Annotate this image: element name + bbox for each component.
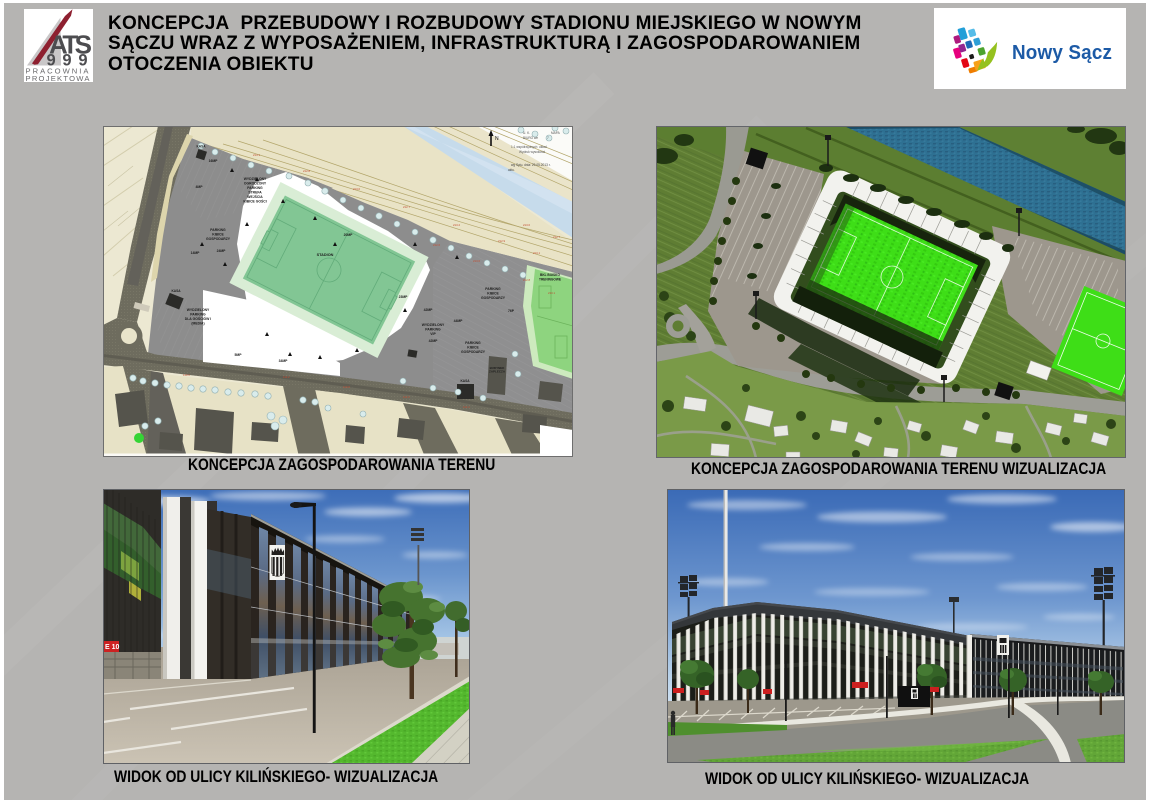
svg-text:aktu.: aktu. (508, 168, 515, 172)
svg-text:4MP: 4MP (196, 185, 204, 189)
svg-text:WYDZIELONY: WYDZIELONY (187, 308, 210, 312)
svg-text:213.1: 213.1 (548, 291, 555, 295)
svg-text:213.0: 213.0 (473, 259, 480, 263)
svg-text:(MEDIA): (MEDIA) (191, 322, 204, 326)
svg-text:212.7: 212.7 (403, 205, 410, 209)
svg-text:111.2: 111.2 (283, 375, 290, 379)
svg-text:213.1: 213.1 (253, 153, 260, 157)
svg-text:PARKING: PARKING (210, 228, 226, 232)
svg-text:213.0: 213.0 (523, 223, 530, 227)
svg-text:PARKING: PARKING (425, 328, 441, 332)
svg-text:STREFA: STREFA (248, 191, 262, 195)
svg-text:111.0: 111.0 (403, 395, 410, 399)
svg-text:TRENINGOWE: TRENINGOWE (539, 278, 561, 282)
svg-text:24MP: 24MP (217, 249, 227, 253)
svg-text:44MP: 44MP (454, 319, 464, 323)
svg-text:213.2: 213.2 (453, 223, 460, 227)
svg-text:GOSPODARZY: GOSPODARZY (206, 237, 231, 241)
svg-text:110.8: 110.8 (343, 385, 350, 389)
svg-text:KIBICE GOŚCI: KIBICE GOŚCI (243, 199, 266, 204)
svg-text:KASA: KASA (460, 379, 470, 383)
svg-text:212.7: 212.7 (553, 235, 560, 239)
svg-text:Nowy Sącz: Nowy Sącz (1012, 41, 1112, 64)
svg-text:ZAPLECZA: ZAPLECZA (489, 370, 506, 374)
svg-text:WYDZIELONY: WYDZIELONY (422, 323, 445, 327)
svg-text:WEJŚCIA: WEJŚCIA (247, 194, 263, 199)
svg-text:GOSPODARZY: GOSPODARZY (481, 296, 506, 300)
svg-text:PARKING: PARKING (485, 287, 501, 291)
svg-text:PARKING: PARKING (190, 313, 206, 317)
svg-text:KIBICE: KIBICE (467, 346, 479, 350)
svg-text:MAPA: MAPA (551, 131, 561, 135)
svg-text:N: N (495, 136, 499, 142)
svg-text:E 10: E 10 (105, 644, 120, 651)
svg-text:OGRODZONY: OGRODZONY (244, 182, 267, 186)
svg-text:DLA GOŚCIÓW I: DLA GOŚCIÓW I (185, 316, 211, 321)
svg-text:1:1 współrzędnych: 1:1 współrzędnych (511, 145, 538, 149)
svg-text:212.6: 212.6 (433, 243, 440, 247)
svg-text:wg Sytu. dnia: 29.05.2013 r.: wg Sytu. dnia: 29.05.2013 r. (511, 163, 551, 167)
svg-text:STADION: STADION (317, 253, 334, 257)
svg-text:212.8: 212.8 (303, 169, 310, 173)
svg-text:BIURO we: BIURO we (523, 136, 538, 140)
svg-text:7: 7 (547, 136, 549, 140)
svg-text:Wydruk wysokości: Wydruk wysokości (519, 150, 545, 154)
svg-text:PARKING: PARKING (247, 186, 263, 190)
svg-text:KASA: KASA (196, 145, 206, 149)
svg-text:76P: 76P (508, 309, 515, 313)
svg-text:111.4: 111.4 (463, 405, 470, 409)
svg-text:42MP: 42MP (429, 339, 439, 343)
svg-text:KIBICE: KIBICE (487, 292, 499, 296)
svg-text:GOSPODARZY: GOSPODARZY (461, 350, 486, 354)
svg-text:110.6: 110.6 (183, 373, 190, 377)
svg-text:WYDZIELONY: WYDZIELONY (244, 177, 267, 181)
svg-text:212.9: 212.9 (498, 239, 505, 243)
svg-text:KASA: KASA (171, 289, 181, 293)
svg-text:KIBICE: KIBICE (212, 233, 224, 237)
svg-text:U. K.: U. K. (523, 131, 530, 135)
svg-text:PARKING: PARKING (465, 341, 481, 345)
svg-text:5MP: 5MP (235, 353, 243, 357)
svg-text:42MP: 42MP (424, 308, 434, 312)
svg-text:PROJEKTOWA: PROJEKTOWA (26, 74, 91, 82)
svg-text:212.8: 212.8 (523, 278, 530, 282)
svg-text:VIP: VIP (430, 332, 436, 336)
svg-text:213.0: 213.0 (353, 187, 360, 191)
svg-text:16MP: 16MP (209, 159, 219, 163)
svg-text:213.1: 213.1 (533, 251, 540, 255)
svg-text:34MP: 34MP (279, 359, 289, 363)
svg-text:20MP: 20MP (344, 233, 354, 237)
svg-text:14MP: 14MP (191, 251, 201, 255)
svg-text:23MP: 23MP (399, 295, 409, 299)
svg-text:BKL BOISKO: BKL BOISKO (540, 273, 560, 277)
svg-text:układ: układ (539, 145, 547, 149)
